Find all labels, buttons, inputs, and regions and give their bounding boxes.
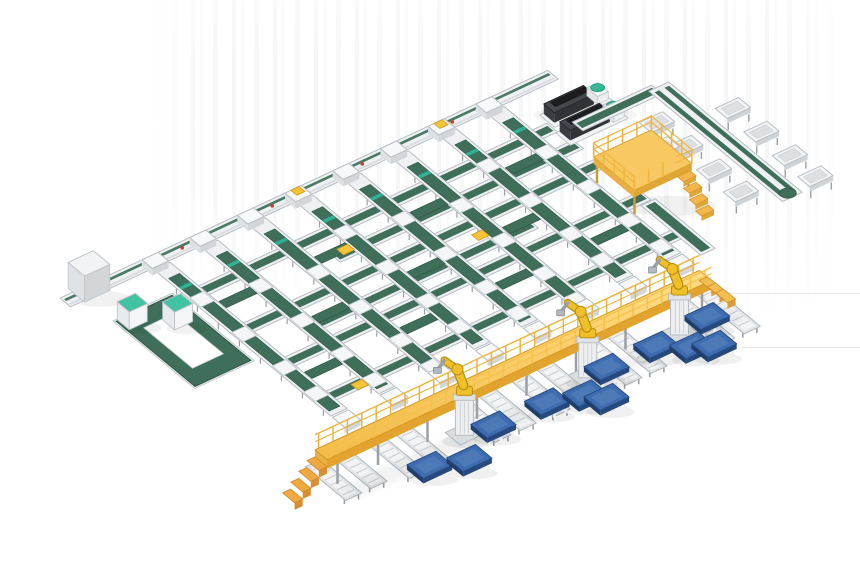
walkway-ramp xyxy=(283,457,327,510)
merge-belt xyxy=(305,358,343,379)
robot-gripper xyxy=(557,310,565,316)
tray-station xyxy=(798,166,833,198)
robot-gripper xyxy=(649,267,657,273)
pod-teal-dome xyxy=(591,84,605,92)
merge-belt xyxy=(495,269,533,290)
merge-belt xyxy=(400,313,438,333)
marker-dot xyxy=(270,204,274,208)
tray-station xyxy=(723,181,758,213)
robot-gripper xyxy=(433,367,441,373)
merge-belt xyxy=(591,224,629,245)
marker-dot xyxy=(180,246,184,250)
marker-dot xyxy=(450,120,454,124)
tray-station xyxy=(696,159,731,191)
marker-dot xyxy=(360,162,364,166)
merge-belt xyxy=(219,287,257,308)
factory-render-canvas xyxy=(0,0,860,580)
isometric-scene xyxy=(0,0,860,580)
